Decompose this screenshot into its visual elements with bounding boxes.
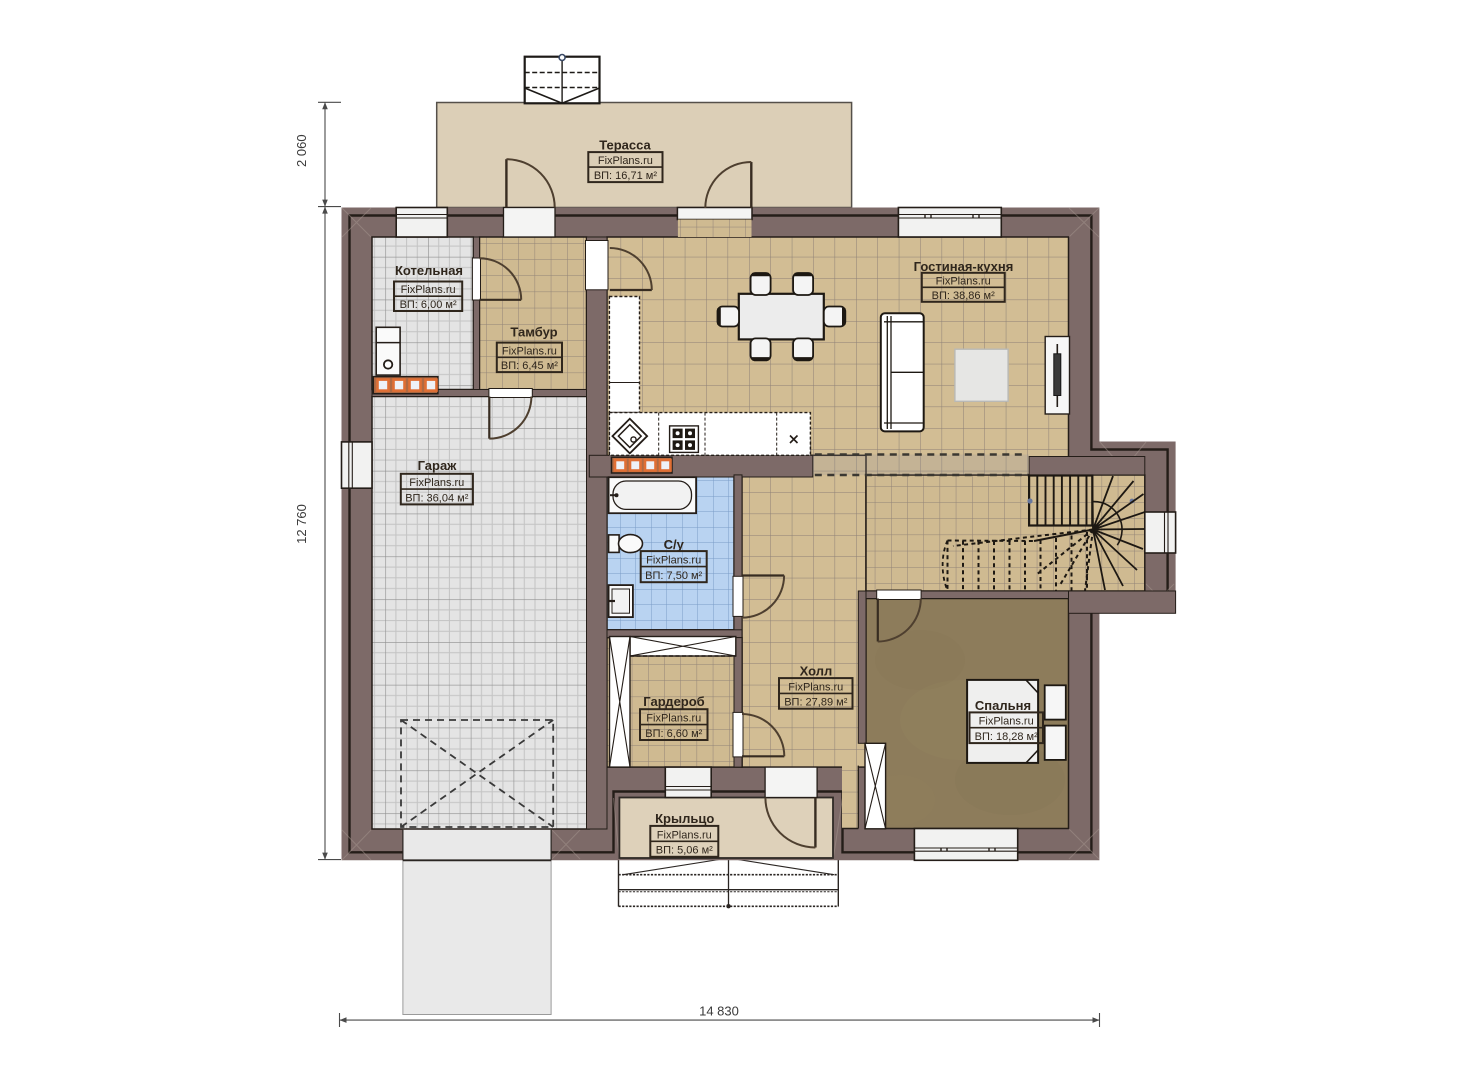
svg-text:FixPlans.ru: FixPlans.ru: [646, 713, 701, 725]
svg-text:FixPlans.ru: FixPlans.ru: [788, 681, 843, 693]
svg-text:FixPlans.ru: FixPlans.ru: [657, 829, 712, 841]
svg-text:ВП: 27,89 м²: ВП: 27,89 м²: [784, 697, 848, 709]
svg-text:2 060: 2 060: [294, 134, 309, 167]
svg-text:ВП: 6,00 м²: ВП: 6,00 м²: [400, 299, 457, 311]
svg-text:FixPlans.ru: FixPlans.ru: [598, 155, 653, 167]
svg-text:ВП: 6,45 м²: ВП: 6,45 м²: [501, 360, 558, 372]
svg-text:ВП: 18,28 м²: ВП: 18,28 м²: [975, 731, 1039, 743]
svg-text:14 830: 14 830: [699, 1004, 739, 1019]
svg-text:Крыльцо: Крыльцо: [655, 811, 714, 826]
svg-text:ВП: 36,04 м²: ВП: 36,04 м²: [405, 492, 469, 504]
svg-text:ВП: 16,71 м²: ВП: 16,71 м²: [594, 170, 658, 182]
svg-text:ВП: 7,50 м²: ВП: 7,50 м²: [645, 570, 702, 582]
svg-text:Гараж: Гараж: [418, 458, 458, 473]
svg-text:ВП: 38,86 м²: ВП: 38,86 м²: [932, 290, 996, 302]
svg-text:FixPlans.ru: FixPlans.ru: [502, 345, 557, 357]
svg-text:FixPlans.ru: FixPlans.ru: [646, 555, 701, 567]
svg-text:Тамбур: Тамбур: [510, 325, 557, 340]
svg-text:Холл: Холл: [800, 663, 833, 678]
svg-text:Котельная: Котельная: [395, 263, 463, 278]
svg-text:Гостиная-кухня: Гостиная-кухня: [914, 259, 1014, 274]
svg-text:Спальня: Спальня: [975, 698, 1031, 713]
svg-text:Терасса: Терасса: [599, 138, 651, 153]
svg-text:FixPlans.ru: FixPlans.ru: [979, 716, 1034, 728]
svg-text:12 760: 12 760: [294, 504, 309, 544]
svg-text:Гардероб: Гардероб: [643, 694, 704, 709]
svg-text:ВП: 6,60 м²: ВП: 6,60 м²: [645, 728, 702, 740]
svg-text:FixPlans.ru: FixPlans.ru: [936, 275, 991, 287]
svg-text:С/у: С/у: [664, 537, 685, 552]
svg-text:FixPlans.ru: FixPlans.ru: [409, 477, 464, 489]
svg-text:ВП: 5,06 м²: ВП: 5,06 м²: [656, 845, 713, 857]
svg-text:FixPlans.ru: FixPlans.ru: [401, 284, 456, 296]
